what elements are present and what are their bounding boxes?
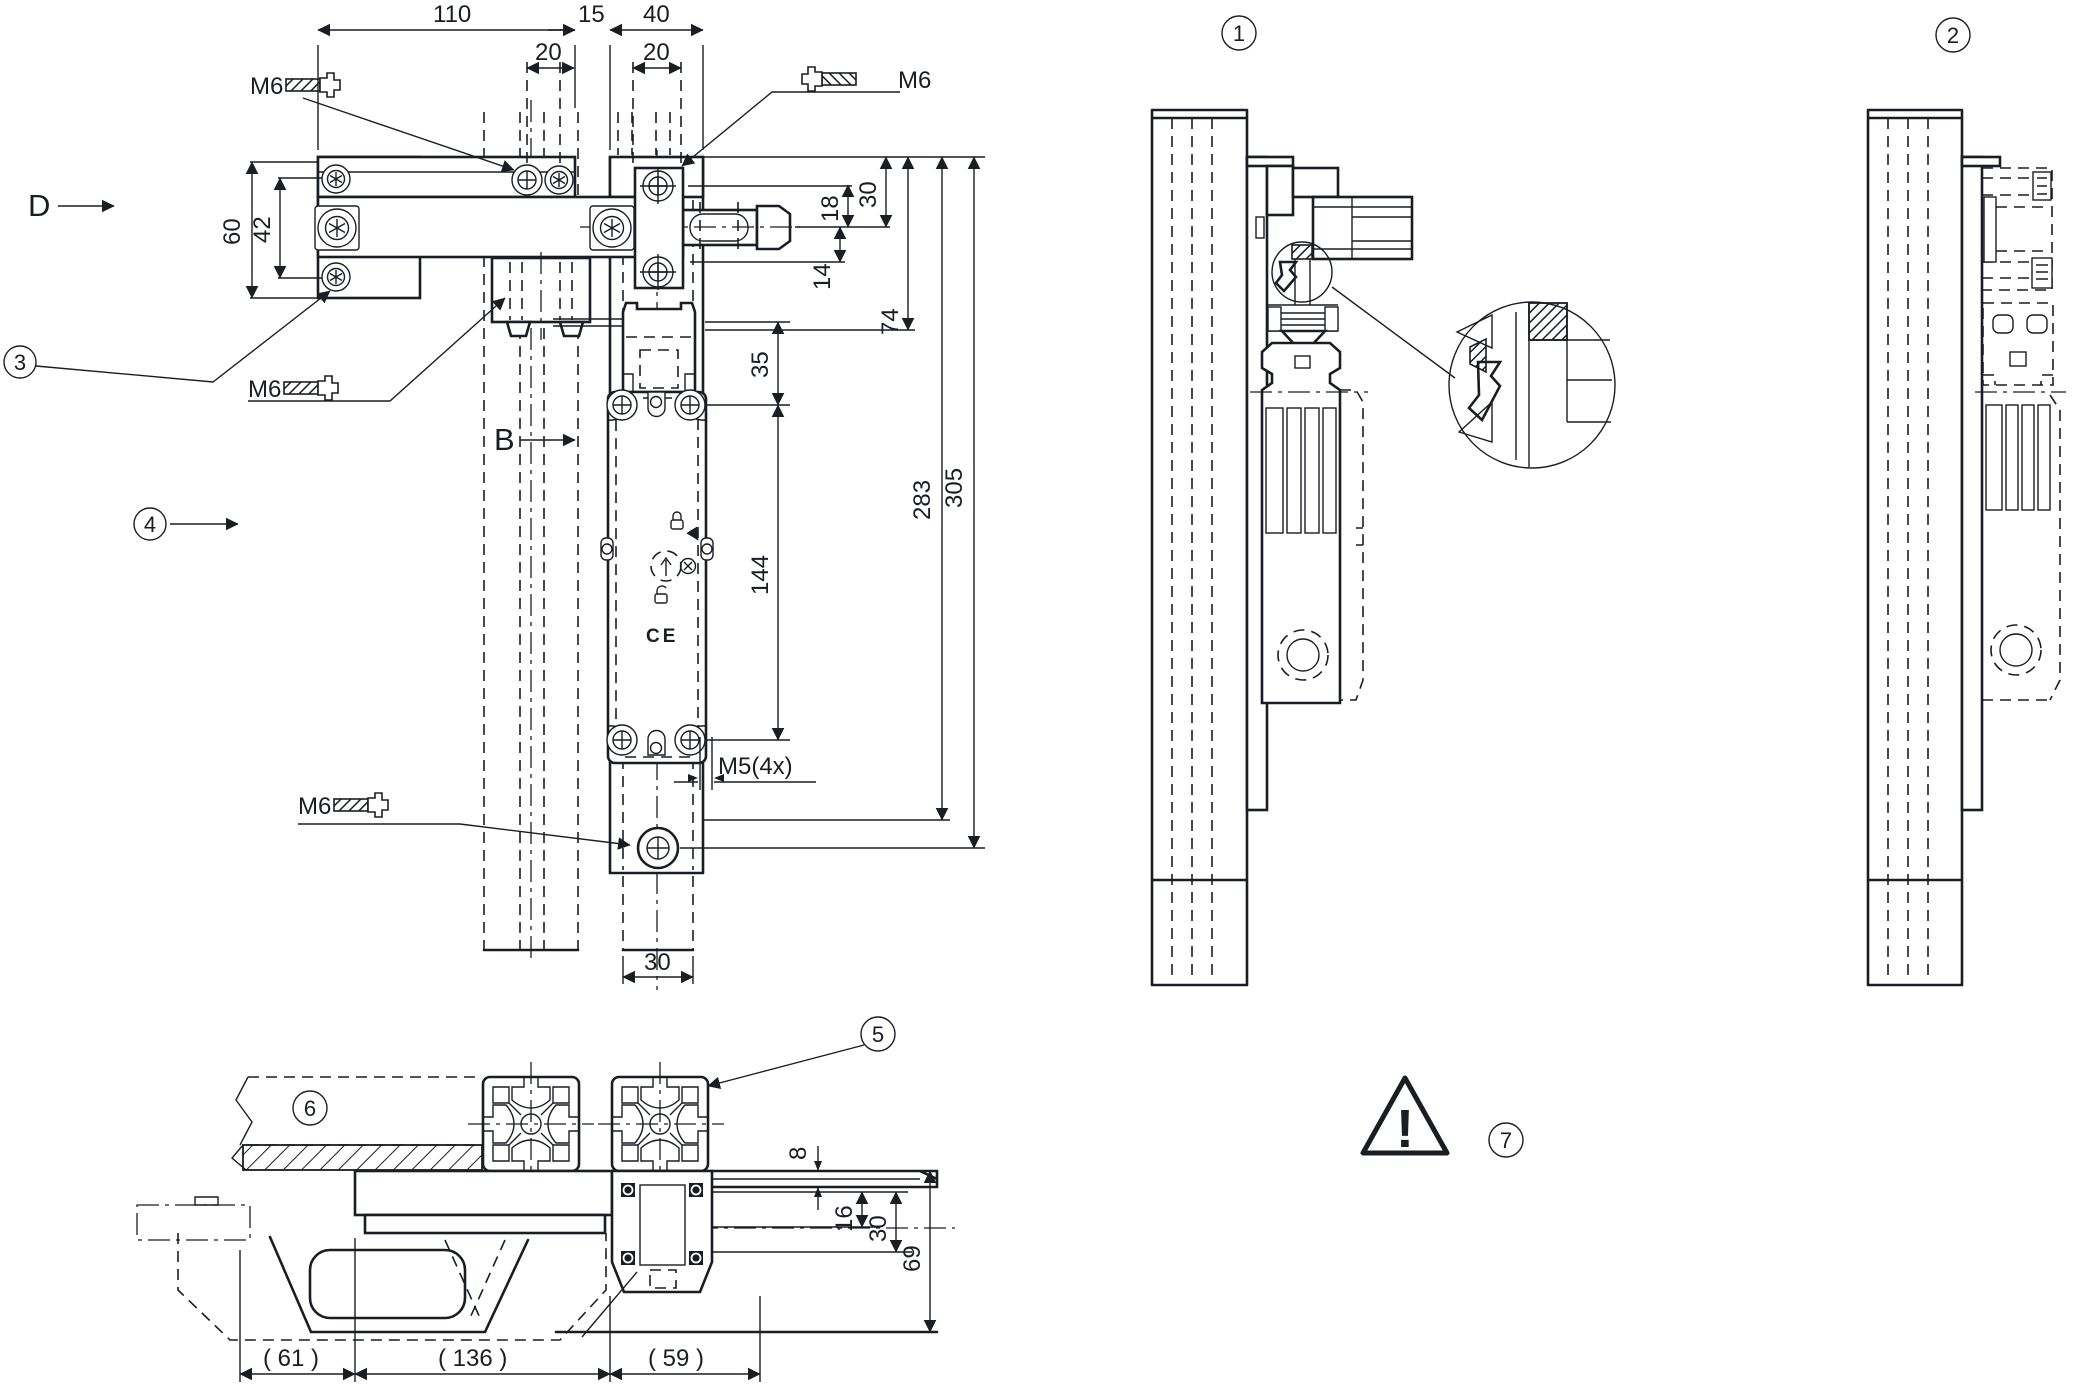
m6-callout-mid: M6	[248, 298, 505, 403]
screw-plate-top	[322, 165, 350, 193]
actuator-housing-side	[1313, 197, 1412, 259]
switch-body: CE	[601, 390, 713, 763]
front-view: CE 110 15 40 20 20 60 42	[4, 1, 985, 990]
screw-body-bottom-left	[607, 725, 637, 755]
mounting-plate-bottom	[355, 1171, 612, 1215]
dim-20a: 20	[535, 39, 562, 66]
screw-plate-mid	[318, 209, 356, 247]
front-dimensions: 110 15 40 20 20 60 42 30 18 14 74 35 144…	[219, 1, 985, 984]
dim-35: 35	[747, 351, 774, 378]
dim-61: ( 61 )	[263, 1345, 319, 1372]
svg-text:7: 7	[1500, 1128, 1512, 1153]
dim-40: 40	[643, 1, 670, 28]
screw-body-top-right	[675, 390, 705, 420]
m6-callout-bottom: M6	[298, 793, 630, 845]
ce-mark: CE	[646, 626, 678, 647]
view-arrow-d: D	[28, 188, 114, 223]
svg-text:M6: M6	[250, 73, 283, 100]
bottom-view: 6 5 8 16 30	[137, 1017, 955, 1382]
svg-text:M6: M6	[248, 376, 281, 403]
door-panel	[232, 1077, 482, 1170]
callout-2: 2	[1936, 18, 1970, 52]
dim-30-bottom: 30	[644, 949, 671, 976]
svg-text:D: D	[28, 188, 50, 223]
screw-channel-bottom	[638, 828, 678, 868]
svg-text:6: 6	[304, 1096, 316, 1121]
svg-text:M6: M6	[298, 793, 331, 820]
dim-30: 30	[865, 1215, 892, 1242]
dim-8: 8	[785, 1147, 812, 1160]
dim-42: 42	[249, 216, 276, 243]
head-hidden	[1983, 303, 2053, 385]
svg-text:3: 3	[14, 350, 26, 375]
connector-ribs-2	[1986, 405, 2050, 510]
dim-m5: M5(4x)	[718, 753, 793, 780]
svg-text:5: 5	[872, 1022, 884, 1047]
side-view-2: 2	[1868, 18, 2066, 985]
dim-14: 14	[809, 263, 836, 290]
callout-3: 3	[4, 291, 330, 382]
dim-18: 18	[817, 195, 844, 222]
dim-30-right: 30	[855, 181, 882, 208]
bracket-hidden	[1982, 168, 2052, 290]
callout-1: 1	[1222, 16, 1256, 50]
dim-20b: 20	[643, 39, 670, 66]
dim-69: 69	[899, 1245, 926, 1272]
screw-rail-a	[512, 165, 542, 195]
dim-144: 144	[747, 555, 774, 595]
side-view-1: 1	[1152, 16, 1615, 985]
dim-59: ( 59 )	[648, 1345, 704, 1372]
warning-note: ! 7	[1363, 1078, 1523, 1159]
svg-text:2: 2	[1947, 23, 1959, 48]
switch-head	[623, 303, 695, 392]
dim-283: 283	[909, 480, 936, 520]
dim-136: ( 136 )	[438, 1345, 507, 1372]
view-arrow-b: B	[494, 422, 575, 457]
callout-5: 5	[708, 1017, 895, 1086]
callout-4: 4	[134, 508, 238, 540]
detail-circle	[1449, 302, 1615, 468]
m6-callout-top-left: M6	[250, 73, 514, 170]
dim-74: 74	[877, 308, 904, 335]
screw-arm-right	[593, 209, 631, 247]
callout-6: 6	[293, 1091, 327, 1125]
dim-60: 60	[219, 218, 246, 245]
drawing-page: CE 110 15 40 20 20 60 42	[0, 0, 2078, 1384]
svg-text:M6: M6	[898, 67, 931, 94]
dim-110: 110	[433, 1, 471, 28]
dim-16: 16	[831, 1205, 858, 1232]
right-bracket	[635, 168, 683, 290]
svg-text:B: B	[494, 422, 515, 457]
warning-exclamation: !	[1396, 1099, 1414, 1159]
technical-drawing: CE 110 15 40 20 20 60 42	[0, 0, 2078, 1384]
dim-15: 15	[578, 1, 605, 28]
svg-text:4: 4	[144, 512, 156, 537]
m6-callout-top-right: M6	[682, 67, 931, 166]
screw-body-top-left	[607, 390, 637, 420]
dim-305: 305	[941, 468, 968, 508]
svg-text:1: 1	[1233, 21, 1245, 46]
callout-7: 7	[1489, 1123, 1523, 1157]
lower-bracket	[492, 252, 626, 340]
screw-rail-b	[545, 166, 573, 194]
screw-plate-bottom	[322, 263, 350, 291]
